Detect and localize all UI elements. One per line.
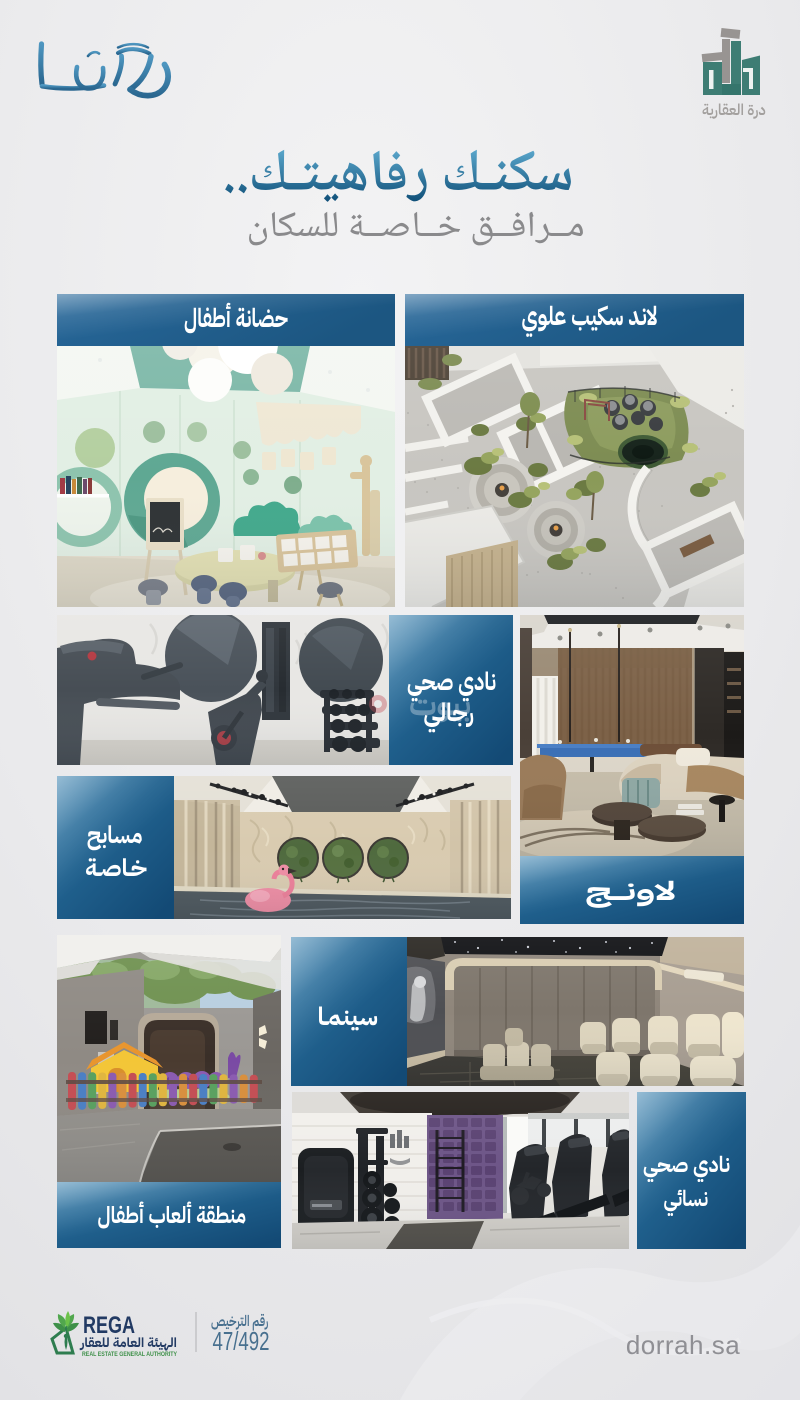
svg-text:REGA: REGA <box>83 1312 135 1339</box>
svg-text:REAL ESTATE GENERAL AUTHORITY: REAL ESTATE GENERAL AUTHORITY <box>82 1352 177 1358</box>
svg-text:47/492: 47/492 <box>213 1326 270 1356</box>
svg-text:dorrah.sa: dorrah.sa <box>626 1330 740 1360</box>
